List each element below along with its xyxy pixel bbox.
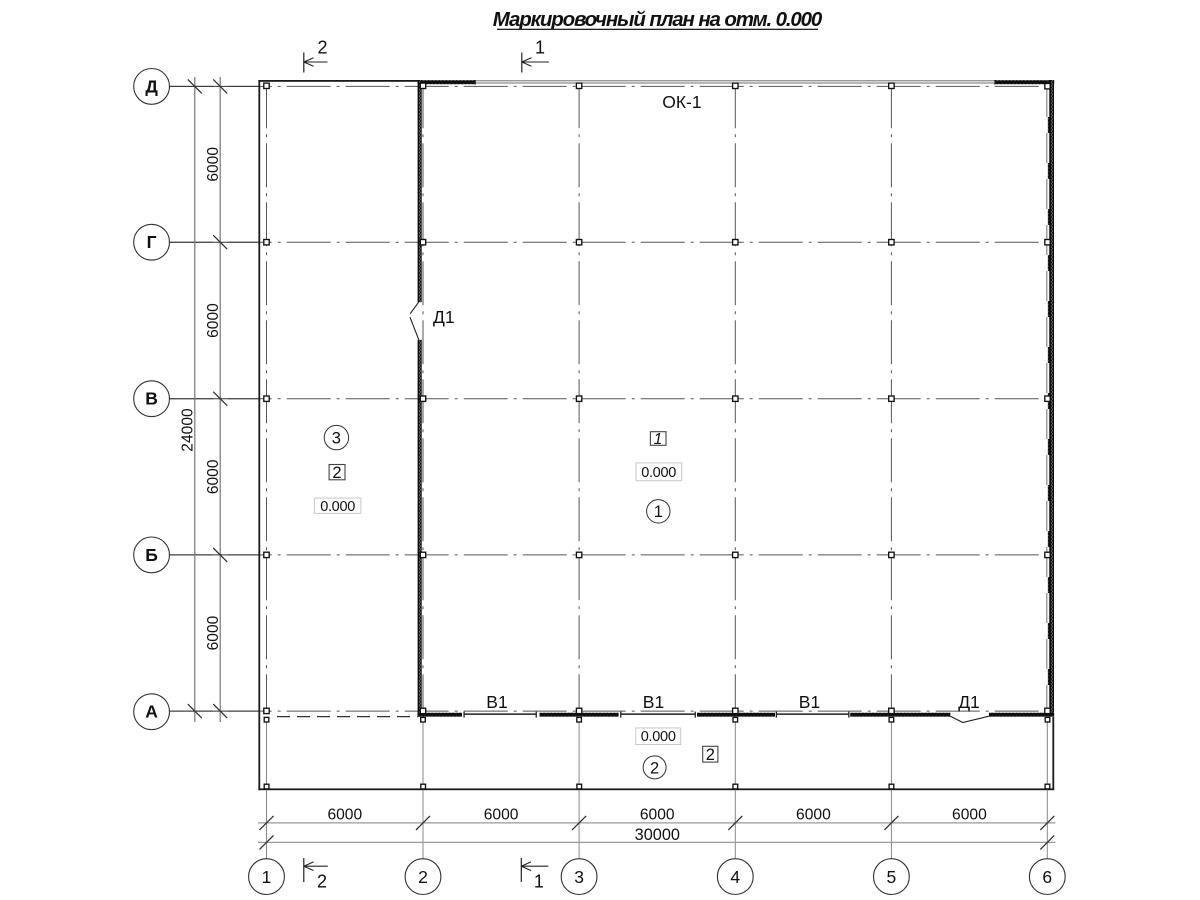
svg-text:Б: Б bbox=[145, 545, 158, 565]
svg-text:2: 2 bbox=[317, 37, 327, 57]
svg-text:Д1: Д1 bbox=[958, 692, 980, 712]
svg-text:6000: 6000 bbox=[640, 807, 675, 824]
svg-text:В: В bbox=[145, 389, 158, 409]
svg-text:1: 1 bbox=[535, 37, 545, 57]
svg-text:Г: Г bbox=[147, 232, 157, 252]
svg-text:24000: 24000 bbox=[180, 408, 197, 452]
svg-text:6: 6 bbox=[1042, 867, 1052, 887]
svg-text:6000: 6000 bbox=[796, 807, 831, 824]
svg-text:0.000: 0.000 bbox=[641, 465, 676, 481]
svg-text:30000: 30000 bbox=[635, 826, 680, 844]
svg-text:2: 2 bbox=[332, 464, 341, 482]
svg-text:В1: В1 bbox=[799, 692, 820, 712]
svg-text:Д1: Д1 bbox=[433, 307, 455, 327]
svg-text:1: 1 bbox=[262, 867, 272, 887]
svg-text:3: 3 bbox=[574, 867, 584, 887]
svg-text:0.000: 0.000 bbox=[320, 499, 355, 515]
svg-text:6000: 6000 bbox=[205, 147, 222, 182]
svg-text:2: 2 bbox=[418, 867, 428, 887]
svg-text:6000: 6000 bbox=[952, 807, 987, 824]
svg-text:6000: 6000 bbox=[205, 303, 222, 338]
svg-text:6000: 6000 bbox=[205, 615, 222, 650]
svg-text:5: 5 bbox=[887, 867, 897, 887]
svg-text:6000: 6000 bbox=[327, 807, 362, 824]
svg-text:2: 2 bbox=[317, 872, 327, 892]
svg-text:В1: В1 bbox=[486, 692, 507, 712]
svg-text:0.000: 0.000 bbox=[641, 729, 676, 745]
svg-text:2: 2 bbox=[706, 746, 715, 764]
svg-text:ОК-1: ОК-1 bbox=[662, 92, 701, 112]
svg-text:6000: 6000 bbox=[205, 459, 222, 494]
svg-text:2: 2 bbox=[650, 759, 659, 777]
svg-text:В1: В1 bbox=[643, 692, 664, 712]
svg-text:3: 3 bbox=[332, 430, 341, 448]
svg-text:Маркировочный план на отм. 0.0: Маркировочный план на отм. 0.000 bbox=[493, 8, 823, 31]
svg-text:Д: Д bbox=[145, 76, 158, 96]
svg-text:1: 1 bbox=[654, 431, 663, 448]
svg-text:1: 1 bbox=[654, 503, 663, 521]
svg-text:4: 4 bbox=[730, 867, 740, 887]
svg-text:А: А bbox=[145, 702, 158, 722]
svg-text:1: 1 bbox=[534, 872, 544, 892]
svg-text:6000: 6000 bbox=[484, 807, 519, 824]
